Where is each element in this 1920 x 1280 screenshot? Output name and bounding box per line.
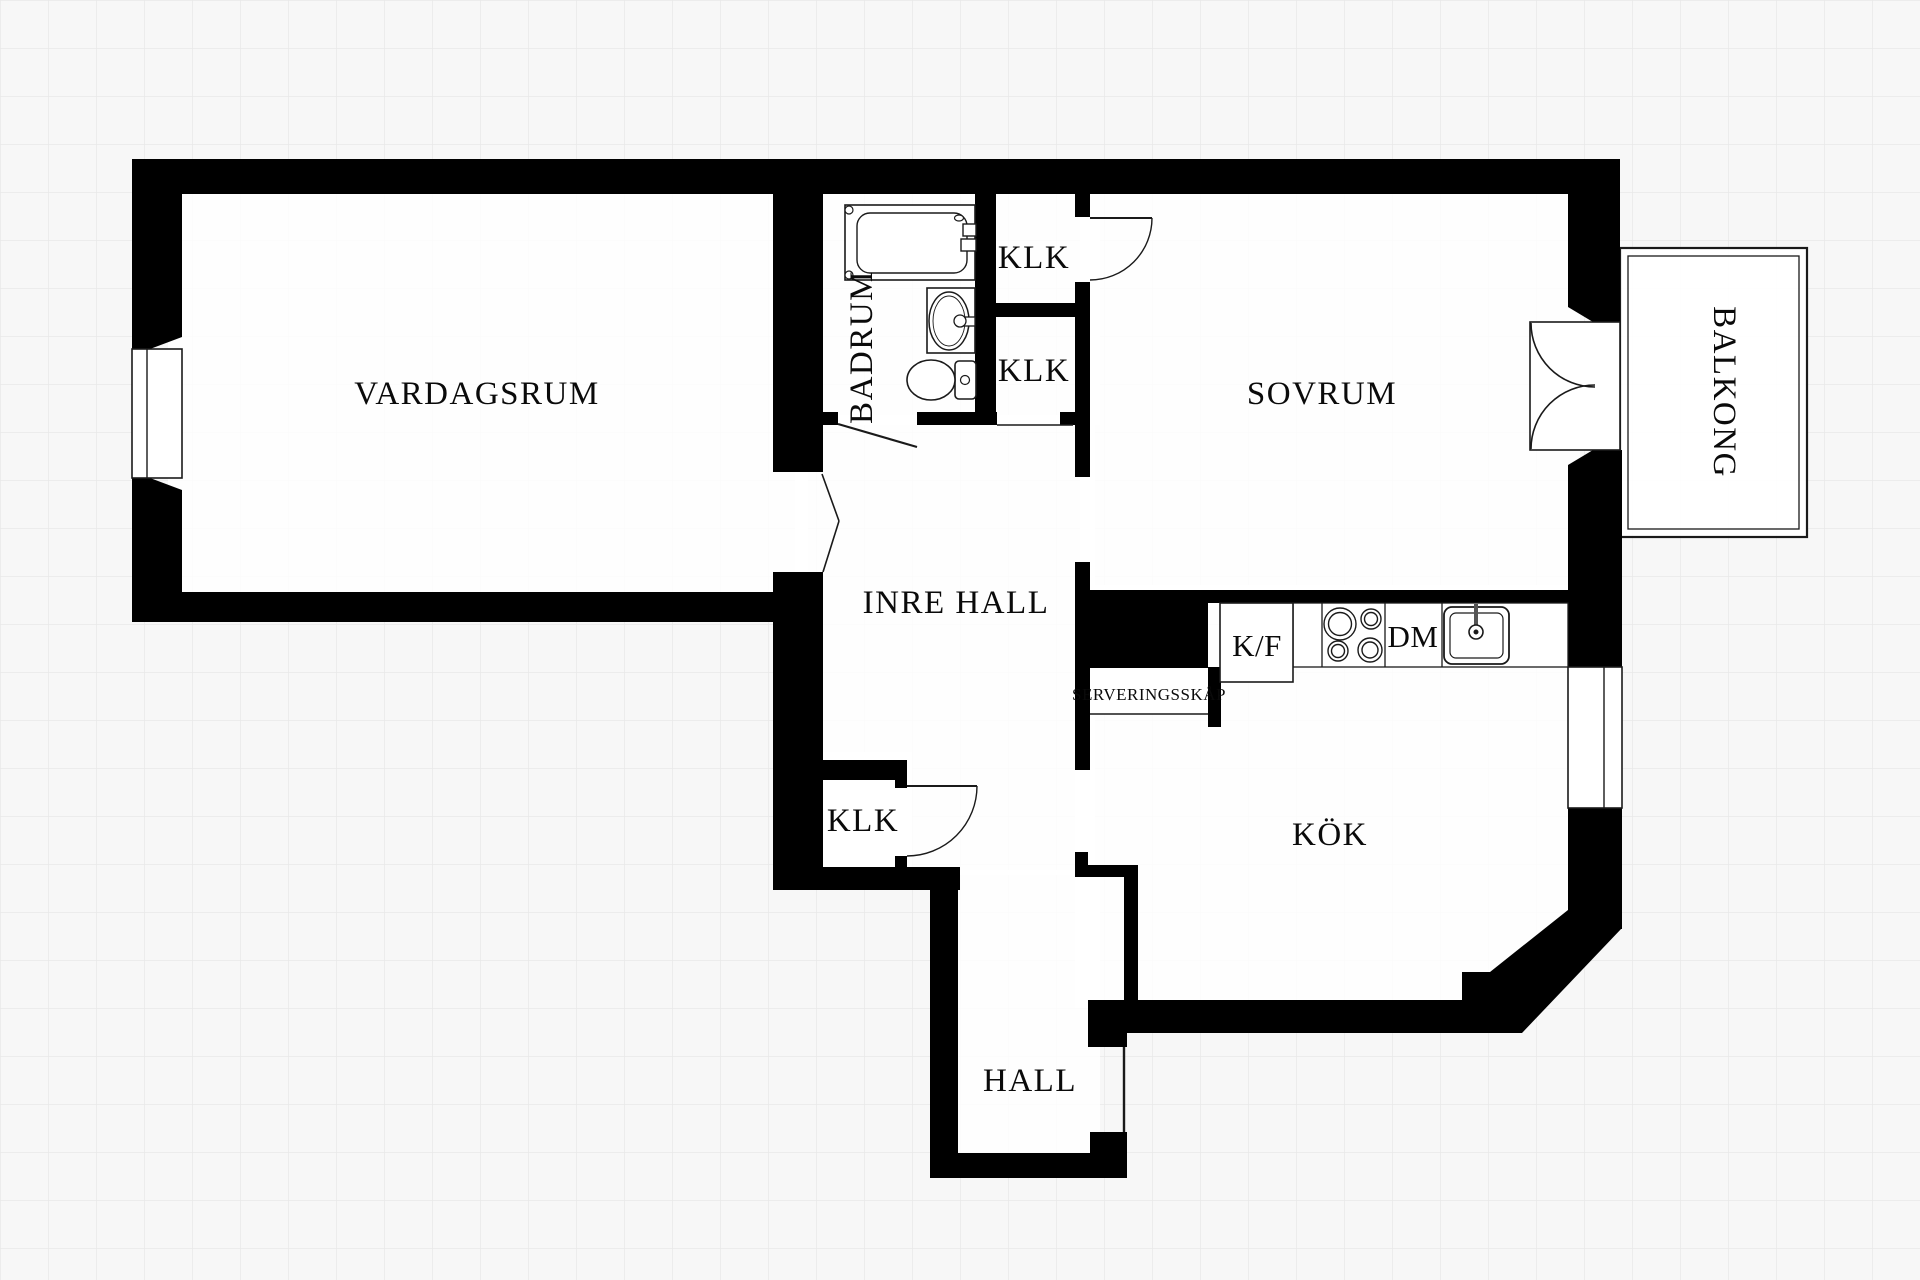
wall-hall-east-lower	[1090, 1132, 1127, 1178]
window-vardagsrum	[132, 349, 182, 478]
room-label-klk-upper: KLK	[998, 240, 1070, 276]
toilet-icon	[907, 360, 976, 400]
wall-badrum-east	[975, 194, 996, 412]
room-label-kok: KÖK	[1292, 817, 1368, 853]
wall-hall-west	[930, 890, 958, 1178]
bathtub-icon	[845, 205, 976, 280]
wall-entry-stub	[1075, 852, 1088, 877]
wall-klk-south-stub-right	[1060, 412, 1075, 425]
washbasin-icon	[927, 288, 975, 353]
wall-badrum-south-stub-left	[823, 412, 838, 425]
wall-east-mid	[1568, 450, 1622, 667]
wall-west-upper	[132, 159, 182, 349]
wall-klk-lower-jamb-top	[895, 780, 907, 788]
floorplan-canvas: VARDAGSRUM SOVRUM BADRUM BALKONG INRE HA…	[0, 0, 1920, 1280]
wall-klk-lower-jamb-bottom	[895, 856, 907, 868]
room-label-klk-mid: KLK	[998, 353, 1070, 389]
room-label-klk-lower: KLK	[827, 803, 899, 839]
label-dishwasher: DM	[1388, 619, 1439, 654]
wall-klk-divider	[996, 303, 1075, 317]
wall-kok-south	[1088, 1000, 1462, 1033]
wall-klk-east-a	[1075, 194, 1090, 217]
wall-vardagsrum-south	[132, 592, 823, 622]
label-serveringsskap: SERVERINGSSKÅP	[1072, 685, 1226, 704]
room-label-badrum: BADRUM	[844, 270, 880, 424]
wall-east-lower	[1568, 808, 1622, 929]
room-label-sovrum: SOVRUM	[1247, 376, 1397, 412]
wall-kok-west	[1124, 877, 1138, 1000]
balcony-door	[1530, 322, 1620, 450]
wall-mid-lower	[773, 572, 823, 890]
wall-mid-upper	[773, 194, 823, 472]
room-label-balkong: BALKONG	[1706, 306, 1742, 478]
wall-serveringsskap-slab	[1090, 590, 1208, 668]
wall-klk-lower-south	[823, 867, 960, 890]
wall-klk-east-b	[1075, 282, 1090, 477]
floorplan-svg: VARDAGSRUM SOVRUM BADRUM BALKONG INRE HA…	[0, 0, 1920, 1280]
wall-east-upper	[1568, 159, 1620, 322]
room-label-vardagsrum: VARDAGSRUM	[354, 376, 599, 412]
wall-entry-horiz	[1088, 865, 1138, 877]
wall-inrehall-east	[1075, 562, 1090, 770]
kitchen-sink-icon	[1444, 604, 1509, 664]
label-fridge-freezer: K/F	[1232, 628, 1282, 663]
wall-badrum-south-mid	[917, 412, 997, 425]
room-label-hall: HALL	[983, 1063, 1077, 1099]
wall-klk-lower-top	[823, 760, 907, 780]
wall-kok-north	[1208, 590, 1568, 603]
room-label-inre-hall: INRE HALL	[863, 585, 1050, 621]
window-kok	[1568, 667, 1622, 808]
wall-north	[132, 159, 1620, 194]
